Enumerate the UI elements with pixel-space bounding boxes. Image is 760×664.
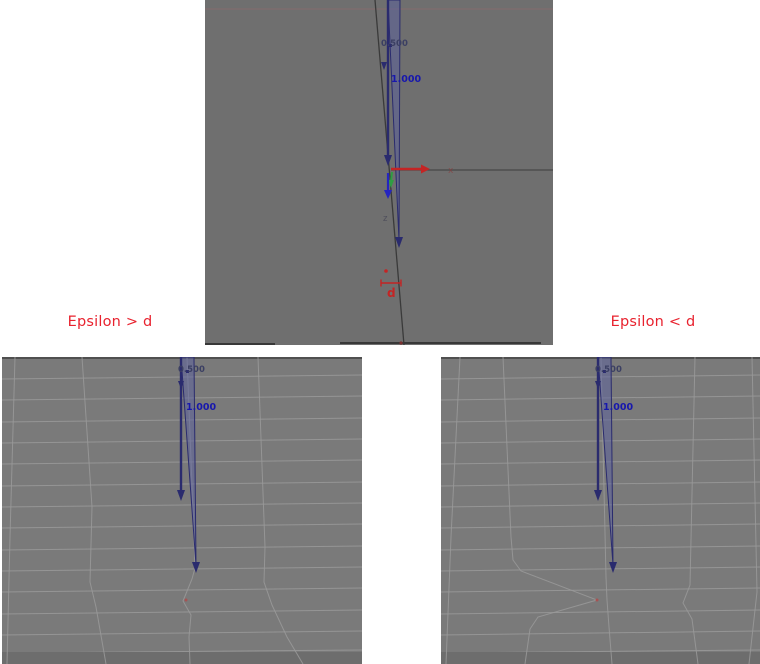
wireframe-rows [441,375,760,653]
top-viewport-panel: 0.500 1.000 x z d [205,0,553,345]
spike-left-arrowhead [594,490,602,501]
panel-bottom-band [441,652,760,664]
measure-label-full: 1.000 [186,402,216,413]
y-axis-arrow-line [391,172,392,181]
merge-vertex-dot [185,599,188,602]
spike-mesh: 0.500 1.000 [177,357,216,573]
merge-vertex-dot [596,599,599,602]
spike-tip-arrowhead [609,562,617,573]
bottom-left-viewport-panel: 0.500 1.000 [2,357,362,664]
measure-label-half: 0.500 [381,39,408,49]
bottom-right-viewport-panel: 0.500 1.000 [441,357,760,664]
spike-fill-polygon [388,0,400,240]
distance-vertex-dot [384,269,388,273]
wireframe-columns [7,357,303,664]
spike-mesh: 0.500 1.000 [381,0,421,248]
measure-label-half: 0.500 [595,365,622,375]
spike-tip-arrowhead [192,562,200,573]
spike-left-arrowhead [177,490,185,501]
z-axis-label: z [383,214,388,224]
caption-epsilon-less: Epsilon < d [578,314,728,330]
measure-tick-arrow [381,62,387,70]
measure-label-full: 1.000 [391,74,421,85]
top-viewport-drawing: 0.500 1.000 x z d [205,0,553,345]
measure-label-half: 0.500 [178,365,205,375]
bottom-edge-vertex-dot [399,341,402,344]
distance-label: d [387,286,396,300]
spike-fill-polygon [181,357,196,565]
spike-artifact-polyline [503,357,597,664]
x-axis-arrowhead [421,165,430,174]
spike-left-arrowhead [384,155,392,166]
x-axis-label: x [448,166,454,176]
bottom-right-drawing: 0.500 1.000 [441,357,760,664]
bottom-left-drawing: 0.500 1.000 [2,357,362,664]
panel-bottom-band [2,652,362,664]
spike-mesh: 0.500 1.000 [594,357,633,573]
measure-label-full: 1.000 [603,402,633,413]
caption-epsilon-greater: Epsilon > d [35,314,185,330]
